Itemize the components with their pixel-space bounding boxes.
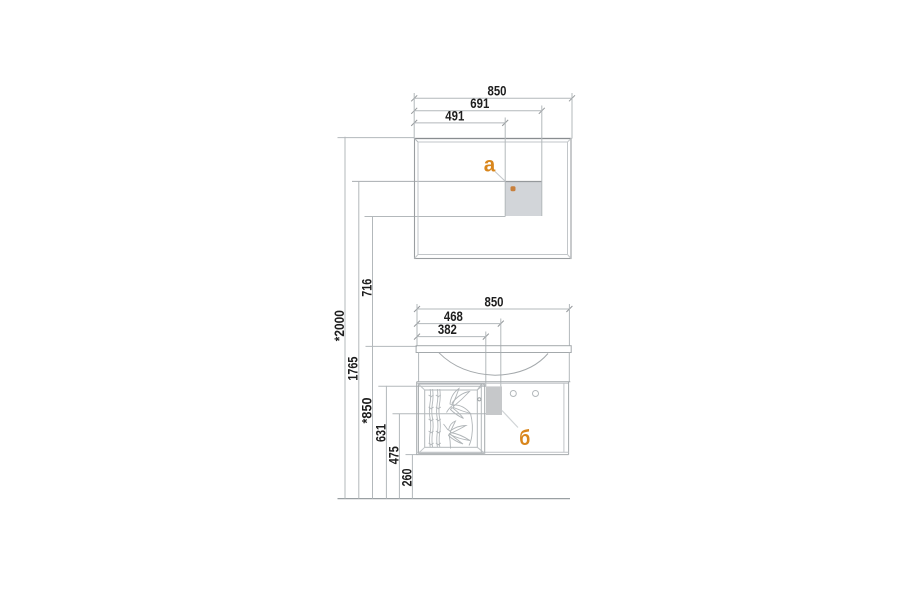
svg-text:691: 691: [470, 96, 489, 111]
svg-text:1765: 1765: [346, 356, 361, 380]
svg-text:475: 475: [386, 446, 401, 464]
svg-text:*850: *850: [359, 398, 374, 424]
svg-text:850: 850: [485, 294, 504, 309]
svg-text:*2000: *2000: [332, 310, 347, 341]
svg-text:a: a: [484, 153, 496, 176]
svg-text:631: 631: [373, 424, 388, 442]
svg-text:б: б: [519, 427, 530, 450]
svg-text:716: 716: [359, 278, 374, 296]
svg-text:491: 491: [445, 108, 464, 123]
svg-text:850: 850: [488, 84, 507, 99]
svg-text:260: 260: [399, 469, 414, 487]
svg-text:382: 382: [438, 322, 457, 337]
